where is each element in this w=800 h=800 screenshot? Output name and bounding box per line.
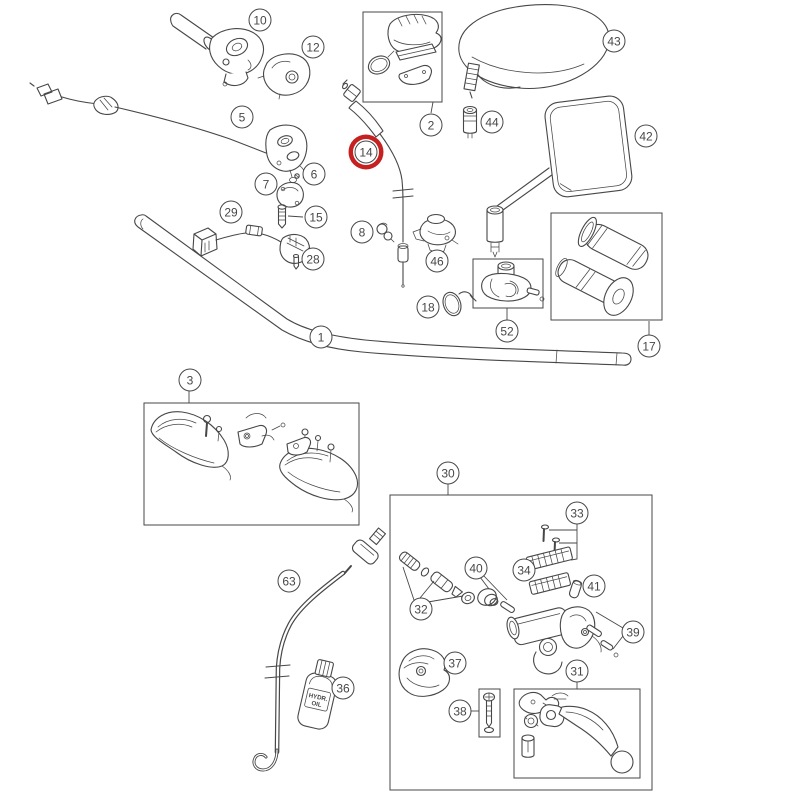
callout-33[interactable]: 33 [566, 502, 589, 525]
callout-number: 18 [421, 301, 434, 313]
callout-number: 2 [428, 119, 435, 131]
callout-number: 32 [414, 603, 427, 615]
callout-layer: 10 12 2 43 44 42 5 14 7 6 [0, 0, 800, 800]
callout-number: 8 [359, 226, 366, 238]
callout-number: 34 [517, 564, 530, 576]
callout-number: 14 [359, 146, 372, 158]
callout-number: 38 [453, 705, 466, 717]
callout-12[interactable]: 12 [302, 36, 325, 59]
callout-number: 44 [485, 116, 498, 128]
callout-number: 31 [570, 665, 583, 677]
callout-63[interactable]: 63 [278, 570, 301, 593]
callout-36[interactable]: 36 [332, 677, 355, 700]
callout-number: 43 [607, 35, 620, 47]
callout-number: 15 [309, 211, 322, 223]
callout-number: 5 [239, 111, 246, 123]
callout-42[interactable]: 42 [635, 125, 658, 148]
callout-number: 40 [469, 562, 482, 574]
callout-30[interactable]: 30 [437, 462, 460, 485]
callout-44[interactable]: 44 [481, 111, 504, 134]
callout-number: 10 [253, 14, 266, 26]
callout-10[interactable]: 10 [249, 9, 272, 32]
callout-number: 28 [306, 253, 319, 265]
callout-number: 3 [187, 374, 194, 386]
callout-37[interactable]: 37 [444, 652, 467, 675]
callout-38[interactable]: 38 [449, 700, 472, 723]
callout-number: 39 [626, 626, 639, 638]
callout-number: 6 [311, 168, 318, 180]
callout-number: 46 [430, 255, 443, 267]
callout-6[interactable]: 6 [303, 163, 326, 186]
callout-14[interactable]: 14 [355, 141, 378, 164]
callout-43[interactable]: 43 [603, 30, 626, 53]
callout-number: 1 [318, 331, 325, 343]
callout-28[interactable]: 28 [302, 248, 325, 271]
callout-40[interactable]: 40 [465, 557, 488, 580]
callout-2[interactable]: 2 [420, 114, 443, 137]
callout-number: 52 [500, 325, 513, 337]
callout-7[interactable]: 7 [255, 173, 278, 196]
callout-number: 37 [448, 657, 461, 669]
callout-32[interactable]: 32 [410, 598, 433, 621]
callout-number: 41 [587, 580, 600, 592]
callout-5[interactable]: 5 [231, 106, 254, 129]
callout-41[interactable]: 41 [583, 575, 606, 598]
callout-number: 36 [336, 682, 349, 694]
callout-46[interactable]: 46 [426, 250, 449, 273]
callout-number: 17 [642, 340, 655, 352]
callout-number: 7 [263, 178, 270, 190]
callout-1[interactable]: 1 [310, 326, 333, 349]
callout-number: 29 [224, 206, 237, 218]
callout-52[interactable]: 52 [496, 320, 519, 343]
callout-15[interactable]: 15 [305, 206, 328, 229]
callout-3[interactable]: 3 [179, 369, 202, 392]
callout-number: 42 [639, 130, 652, 142]
callout-8[interactable]: 8 [351, 221, 374, 244]
callout-number: 30 [441, 467, 454, 479]
callout-31[interactable]: 31 [566, 660, 589, 683]
callout-29[interactable]: 29 [220, 201, 243, 224]
callout-18[interactable]: 18 [417, 296, 440, 319]
callout-number: 63 [282, 575, 295, 587]
callout-number: 33 [570, 507, 583, 519]
callout-34[interactable]: 34 [513, 559, 536, 582]
parts-diagram-canvas: HYDR. OIL [0, 0, 800, 800]
callout-17[interactable]: 17 [638, 335, 661, 358]
callout-39[interactable]: 39 [622, 621, 645, 644]
callout-number: 12 [306, 41, 319, 53]
